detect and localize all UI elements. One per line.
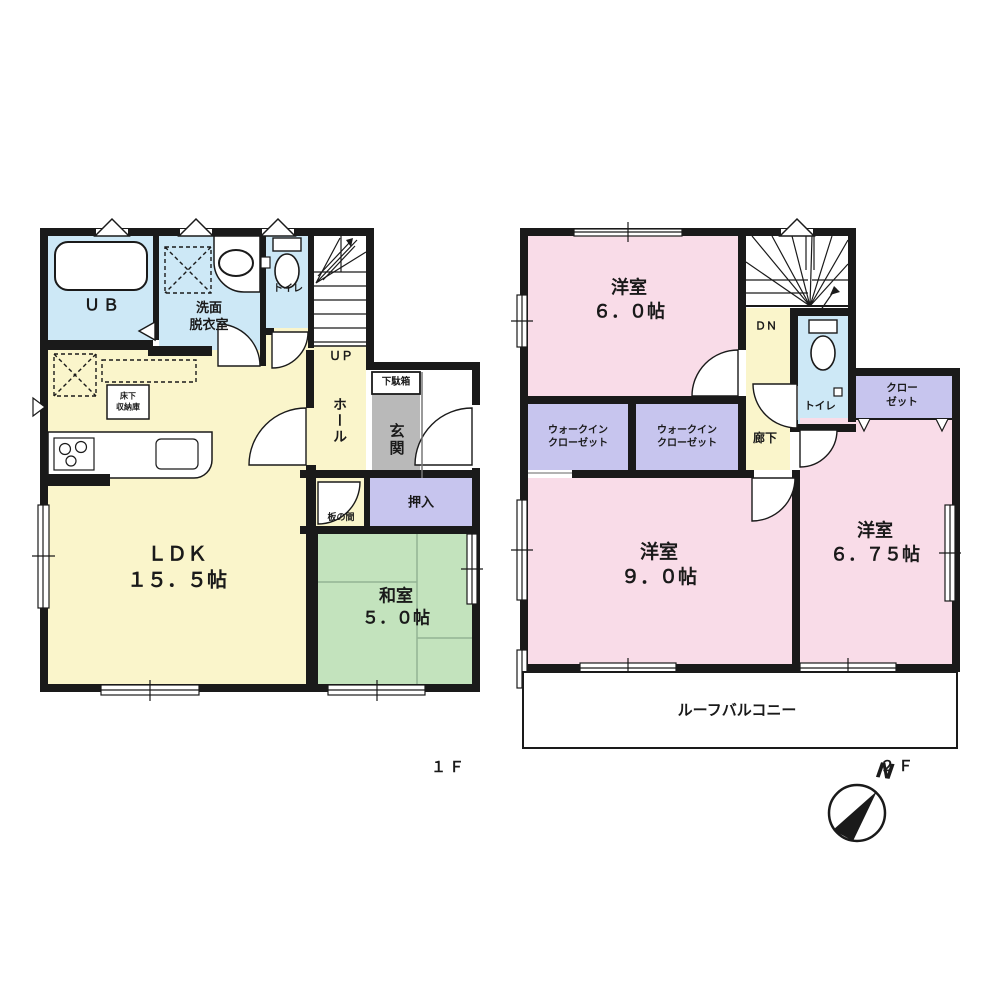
toilet1f-paper-holder [261, 257, 270, 268]
label-dn: ＤＮ [755, 320, 777, 335]
label-toilet-1f: トイレ [273, 282, 303, 295]
label-bedroom9: 洋室 ９．０帖 [621, 540, 697, 590]
label-shoebox: 下駄箱 [382, 377, 411, 390]
label-ub: ＵＢ [84, 294, 122, 315]
toilet2f-paper-holder [834, 388, 842, 396]
label-wic-2: ウォークイン クローゼット [657, 424, 717, 450]
toilet2f-tank [809, 320, 837, 333]
label-washitsu: 和室 ５．０帖 [362, 586, 430, 631]
label-floor1: １Ｆ [431, 758, 467, 778]
floorplan-drawing [0, 0, 1000, 1000]
room-ldk-floor [48, 350, 306, 684]
label-entrance: 玄関 [389, 423, 404, 457]
label-washroom: 洗面 脱衣室 [189, 300, 228, 334]
kitchen-sink [156, 439, 198, 469]
bathtub [55, 242, 147, 290]
label-hall: ホール [332, 397, 346, 445]
label-bedroom675: 洋室 ６．７５帖 [830, 519, 920, 567]
vent-triangle [95, 219, 129, 236]
washbasin-sink [219, 250, 253, 276]
label-hallway: 廊下 [753, 431, 777, 447]
label-up: ＵＰ [329, 349, 353, 365]
floorplan-page: ＵＢ 洗面 脱衣室 トイレ ＵＰ ホール 下駄箱 玄関 床下 収納庫 ＬＤＫ １… [0, 0, 1000, 1000]
toilet2f-bowl [811, 336, 835, 370]
vent-triangle [179, 219, 213, 236]
label-roof-balcony: ルーフバルコニー [678, 701, 797, 721]
floor2-plan [511, 219, 961, 748]
label-oshiire: 押入 [408, 494, 434, 511]
label-underfloor-storage: 床下 収納庫 [116, 391, 140, 412]
compass-rose [829, 785, 885, 841]
label-closet: クロー ゼット [886, 382, 918, 410]
vent-triangle [261, 219, 295, 236]
kitchen-half-wall [48, 474, 110, 486]
label-wic-1: ウォークイン クローゼット [548, 424, 608, 450]
label-ldk: ＬＤＫ １５．５帖 [127, 541, 227, 594]
label-itanoma: 板の間 [327, 513, 354, 525]
vent-triangle [780, 219, 814, 236]
label-bedroom6: 洋室 ６．０帖 [593, 276, 665, 324]
label-compass-north: N [874, 757, 895, 787]
label-toilet-2f: トイレ [804, 400, 836, 414]
toilet1f-tank [273, 238, 301, 251]
